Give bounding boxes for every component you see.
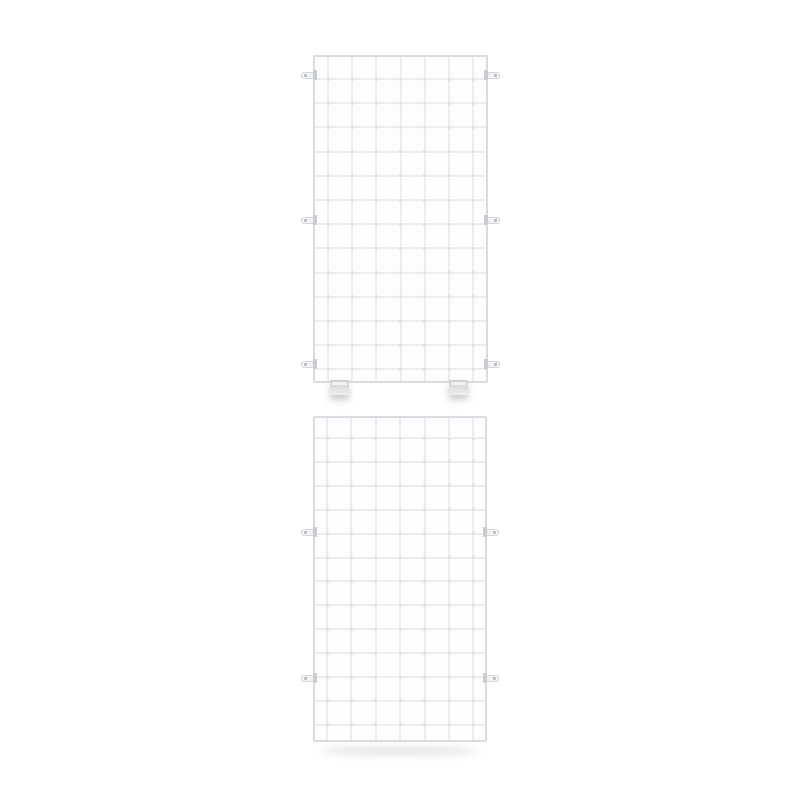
wire-weld-node [399,508,402,511]
mounting-tab-right [483,529,499,536]
wire-weld-node [375,150,378,153]
wire-weld-node [399,580,402,583]
wire-weld-node [399,628,402,631]
wire-weld-node [448,532,451,535]
wire-weld-node [350,484,353,487]
tab-clamp [483,673,487,683]
tab-hole [494,219,497,222]
wire-weld-node [423,344,426,347]
tab-clamp [313,70,317,80]
wire-weld-node [399,460,402,463]
wire-weld-node [350,556,353,559]
wire-weld-node [448,723,451,726]
tab-hole [494,363,497,366]
wire-weld-node [399,676,402,679]
wire-weld-node [327,174,330,177]
wire-weld-node [448,150,451,153]
wire-weld-node [375,126,378,129]
wire-weld-node [399,484,402,487]
wire-weld-node [399,699,402,702]
tab-clamp [483,527,487,537]
wire-weld-node [327,150,330,153]
wire-weld-node [374,580,377,583]
wire-weld-node [351,295,354,298]
wire-weld-node [375,223,378,226]
wire-weld-node [326,508,329,511]
wire-weld-node [374,723,377,726]
tab-clamp [484,359,488,369]
wire-weld-node [448,174,451,177]
wire-weld-node [399,271,402,274]
wire-weld-node [423,223,426,226]
mounting-tab-right [483,675,499,682]
wire-weld-node [472,556,475,559]
wire-weld-node [326,556,329,559]
vertical-wire [327,57,329,381]
wire-weld-node [448,604,451,607]
wire-weld-node [350,460,353,463]
wire-weld-node [423,174,426,177]
wire-weld-node [374,604,377,607]
vertical-wire [400,57,402,381]
wire-weld-node [423,460,426,463]
wire-weld-node [448,78,451,81]
wire-weld-node [399,556,402,559]
wire-weld-node [423,102,426,105]
wire-weld-node [327,199,330,202]
wire-weld-node [351,174,354,177]
wire-weld-node [326,652,329,655]
wire-weld-node [448,126,451,129]
wire-weld-node [448,223,451,226]
vertical-wire [472,57,474,381]
wire-weld-node [472,102,475,105]
wire-weld-node [423,320,426,323]
wire-weld-node [350,676,353,679]
tab-clamp [484,215,488,225]
wire-weld-node [375,247,378,250]
wire-weld-node [399,604,402,607]
grid-panel-upper [313,55,488,383]
wire-weld-node [350,437,353,440]
wire-weld-node [423,437,426,440]
wire-weld-node [423,78,426,81]
wire-weld-node [423,484,426,487]
wire-weld-node [472,699,475,702]
wire-weld-node [327,295,330,298]
wire-weld-node [351,344,354,347]
wire-weld-node [423,508,426,511]
wire-weld-node [472,295,475,298]
wire-weld-node [423,676,426,679]
wire-weld-node [423,295,426,298]
tab-hole [493,677,496,680]
wire-weld-node [448,460,451,463]
wire-weld-node [423,723,426,726]
wire-weld-node [351,271,354,274]
wire-weld-node [472,174,475,177]
wire-weld-node [327,344,330,347]
wire-weld-node [399,344,402,347]
wire-weld-node [472,199,475,202]
wire-weld-node [375,174,378,177]
wire-weld-node [374,652,377,655]
wire-weld-node [326,437,329,440]
wire-weld-node [472,437,475,440]
wire-weld-node [472,320,475,323]
tab-hole [304,219,307,222]
wire-weld-node [448,484,451,487]
wire-weld-node [326,628,329,631]
tab-clamp [313,527,317,537]
wire-weld-node [423,699,426,702]
vertical-wire [375,57,377,381]
wire-weld-node [448,676,451,679]
wire-weld-node [448,295,451,298]
wire-weld-node [399,174,402,177]
wire-weld-node [472,484,475,487]
wire-weld-node [472,532,475,535]
wire-weld-node [326,580,329,583]
wire-weld-node [448,652,451,655]
wire-weld-node [351,247,354,250]
wire-weld-node [351,368,354,371]
wire-weld-node [375,199,378,202]
mounting-tab-left [301,72,317,79]
wire-weld-node [351,150,354,153]
wire-weld-node [399,368,402,371]
wire-weld-node [399,78,402,81]
wire-weld-node [472,460,475,463]
wire-weld-node [351,78,354,81]
wire-weld-node [448,271,451,274]
wire-weld-node [327,102,330,105]
wire-weld-node [350,652,353,655]
tab-clamp [484,70,488,80]
wire-weld-node [351,126,354,129]
wire-weld-node [472,223,475,226]
wire-weld-node [423,199,426,202]
wire-weld-node [423,368,426,371]
mounting-tab-left [301,675,317,682]
wire-weld-node [375,344,378,347]
wire-weld-node [374,556,377,559]
wire-weld-node [375,320,378,323]
tab-hole [493,531,496,534]
wire-weld-node [374,460,377,463]
mounting-tab-right [484,361,500,368]
wire-weld-node [448,508,451,511]
tab-hole [304,677,307,680]
stage [0,0,800,800]
vertical-wire [448,57,450,381]
wire-weld-node [399,295,402,298]
wire-weld-node [351,320,354,323]
wire-weld-node [399,150,402,153]
wire-weld-node [423,628,426,631]
wire-weld-node [472,676,475,679]
wire-weld-node [399,126,402,129]
mounting-tab-right [484,217,500,224]
wire-weld-node [375,102,378,105]
wire-weld-node [448,247,451,250]
wire-weld-node [472,126,475,129]
support-foot [330,380,349,395]
tab-hole [304,363,307,366]
wire-weld-node [350,604,353,607]
wire-weld-node [472,271,475,274]
wire-weld-node [374,437,377,440]
wire-weld-node [351,199,354,202]
wire-weld-node [374,484,377,487]
wire-weld-node [350,508,353,511]
wire-weld-node [327,320,330,323]
wire-weld-node [375,271,378,274]
wire-weld-node [448,320,451,323]
support-foot [449,380,468,395]
wire-weld-node [448,580,451,583]
wire-weld-node [423,532,426,535]
tab-clamp [313,359,317,369]
wire-weld-node [351,102,354,105]
wire-weld-node [448,556,451,559]
wire-weld-node [326,484,329,487]
wire-weld-node [375,368,378,371]
vertical-wire [424,57,426,381]
wire-weld-node [326,699,329,702]
wire-weld-node [472,247,475,250]
wire-weld-node [326,460,329,463]
wire-weld-node [350,699,353,702]
wire-weld-node [374,628,377,631]
wire-weld-node [472,368,475,371]
vertical-wire [351,57,353,381]
wire-weld-node [472,723,475,726]
wire-weld-node [423,652,426,655]
wire-weld-node [326,676,329,679]
wire-weld-node [399,223,402,226]
wire-weld-node [472,628,475,631]
mounting-tab-left [301,217,317,224]
wire-weld-node [448,344,451,347]
wire-weld-node [374,508,377,511]
wire-weld-node [374,676,377,679]
wire-weld-node [327,223,330,226]
wire-weld-node [423,556,426,559]
wire-weld-node [327,78,330,81]
wire-weld-node [326,532,329,535]
mounting-tab-right [484,72,500,79]
wire-weld-node [423,604,426,607]
wire-weld-node [448,699,451,702]
wire-weld-node [326,604,329,607]
wire-weld-node [448,102,451,105]
wire-weld-node [399,532,402,535]
wire-weld-node [472,652,475,655]
tab-clamp [313,673,317,683]
wire-weld-node [472,78,475,81]
wire-weld-node [472,344,475,347]
wire-weld-node [350,580,353,583]
wire-weld-node [399,437,402,440]
wire-weld-node [399,199,402,202]
wire-weld-node [472,150,475,153]
wire-weld-node [351,223,354,226]
wire-weld-node [472,580,475,583]
wire-weld-node [399,102,402,105]
wire-weld-node [350,628,353,631]
wire-weld-node [327,271,330,274]
wire-weld-node [399,320,402,323]
wire-weld-node [399,723,402,726]
wire-weld-node [350,723,353,726]
ground-shadow [319,747,479,755]
wire-weld-node [472,604,475,607]
wire-weld-node [448,628,451,631]
wire-weld-node [350,532,353,535]
tab-hole [304,74,307,77]
tab-hole [304,531,307,534]
wire-weld-node [327,368,330,371]
wire-weld-node [326,723,329,726]
wire-weld-node [448,199,451,202]
wire-weld-node [423,126,426,129]
wire-weld-node [448,437,451,440]
tab-clamp [313,215,317,225]
wire-weld-node [327,126,330,129]
wire-weld-node [472,508,475,511]
wire-weld-node [374,532,377,535]
wire-weld-node [399,652,402,655]
wire-weld-node [448,368,451,371]
mounting-tab-left [301,361,317,368]
wire-weld-node [375,295,378,298]
wire-weld-node [327,247,330,250]
wire-weld-node [423,247,426,250]
mounting-tab-left [301,529,317,536]
tab-hole [494,74,497,77]
wire-weld-node [374,699,377,702]
wire-weld-node [375,78,378,81]
wire-weld-node [423,580,426,583]
grid-panel-lower [313,416,487,742]
wire-weld-node [423,150,426,153]
wire-weld-node [423,271,426,274]
wire-weld-node [399,247,402,250]
